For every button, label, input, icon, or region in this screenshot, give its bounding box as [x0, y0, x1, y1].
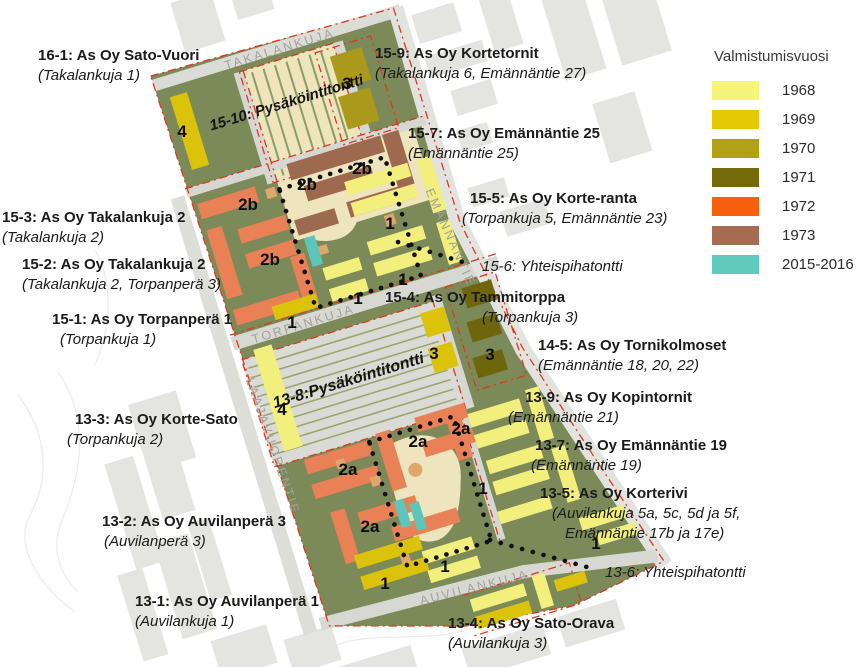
- legend-row: 2015-2016: [712, 255, 862, 274]
- legend: Valmistumisvuosi 19681969197019711972197…: [712, 48, 862, 284]
- legend-year: 1972: [782, 198, 815, 215]
- legend-row: 1968: [712, 81, 862, 100]
- legend-title: Valmistumisvuosi: [714, 48, 862, 65]
- legend-year: 1968: [782, 82, 815, 99]
- site-plan-page: TAKALANKUJAEMÄNNÄNTIETORPANKUJALAAJAVUOR…: [0, 0, 868, 667]
- building-number: 4: [177, 122, 187, 141]
- legend-year: 1969: [782, 111, 815, 128]
- building-number: 1: [440, 557, 449, 576]
- building-number: 2b: [238, 195, 258, 214]
- building-number: 3: [429, 344, 438, 363]
- building-number: 1: [353, 289, 362, 308]
- building-number: 1: [385, 214, 394, 233]
- legend-year: 1970: [782, 140, 815, 157]
- building-number: 3: [342, 74, 351, 93]
- legend-row: 1972: [712, 197, 862, 216]
- building-number: 4: [277, 400, 287, 419]
- building-number: 1: [380, 574, 389, 593]
- building-number: 2b: [352, 159, 372, 178]
- building-number: 3: [485, 345, 494, 364]
- building-number: 2a: [452, 419, 471, 438]
- legend-year: 2015-2016: [782, 256, 854, 273]
- building-number: 1: [398, 270, 407, 289]
- legend-year: 1971: [782, 169, 815, 186]
- building-number: 1: [591, 534, 600, 553]
- building-number: 1: [478, 479, 487, 498]
- building-number: 2b: [260, 250, 280, 269]
- legend-swatch: [712, 255, 759, 274]
- building-number: 2a: [361, 517, 380, 536]
- legend-swatch: [712, 81, 759, 100]
- legend-swatch: [712, 110, 759, 129]
- legend-row: 1973: [712, 226, 862, 245]
- building-number: 1: [287, 313, 296, 332]
- legend-year: 1973: [782, 227, 815, 244]
- building-number: 2a: [339, 460, 358, 479]
- legend-items: 1968196919701971197219732015-2016: [712, 81, 862, 274]
- legend-row: 1969: [712, 110, 862, 129]
- legend-swatch: [712, 197, 759, 216]
- legend-row: 1971: [712, 168, 862, 187]
- building-number: 2a: [409, 432, 428, 451]
- legend-swatch: [712, 139, 759, 158]
- building-number: 2b: [297, 175, 317, 194]
- legend-swatch: [712, 168, 759, 187]
- legend-swatch: [712, 226, 759, 245]
- legend-row: 1970: [712, 139, 862, 158]
